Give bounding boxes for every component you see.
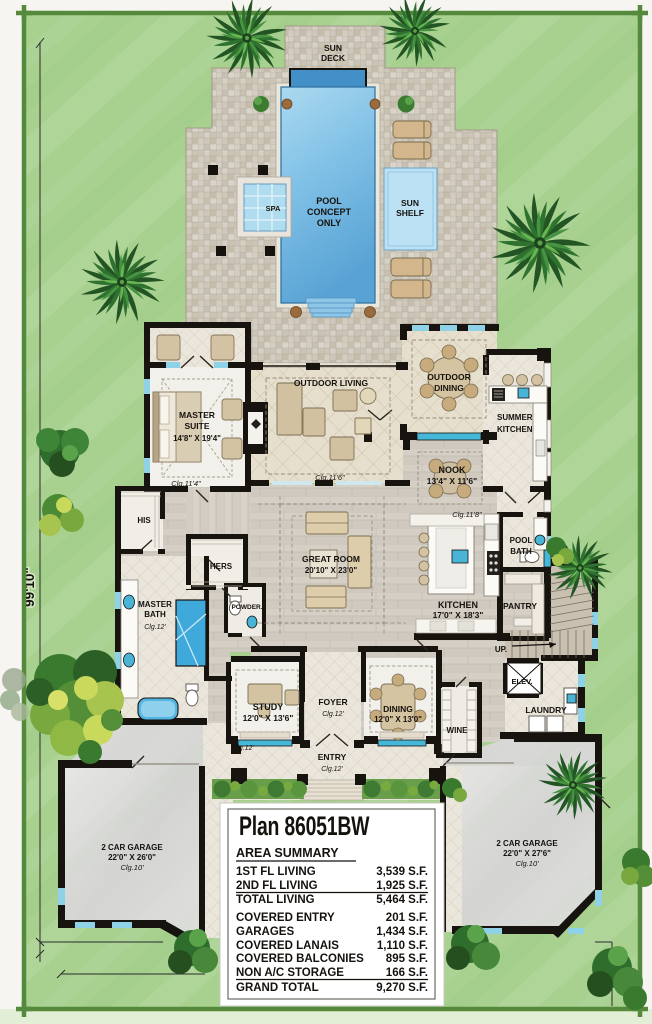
svg-text:CONCEPT: CONCEPT (307, 207, 352, 217)
svg-text:POOL: POOL (510, 536, 533, 545)
svg-text:12'0" X 13'6": 12'0" X 13'6" (243, 713, 294, 723)
svg-text:LAUNDRY: LAUNDRY (525, 705, 567, 715)
svg-text:Clg.11'6": Clg.11'6" (315, 473, 345, 482)
svg-text:Clg.11'4": Clg.11'4" (171, 479, 201, 488)
svg-text:2ND FL LIVING: 2ND FL LIVING (236, 880, 318, 892)
svg-text:22'0" X 27'6": 22'0" X 27'6" (503, 849, 551, 858)
svg-text:MASTER: MASTER (179, 410, 215, 420)
svg-text:13'4" X 11'6": 13'4" X 11'6" (427, 476, 477, 486)
svg-text:BATH: BATH (144, 610, 166, 619)
svg-text:DECK: DECK (321, 53, 346, 63)
svg-text:NOOK: NOOK (439, 465, 467, 475)
svg-text:NON A/C STORAGE: NON A/C STORAGE (236, 967, 344, 979)
svg-text:17'0" X 18'3": 17'0" X 18'3" (433, 610, 484, 620)
svg-text:2 CAR GARAGE: 2 CAR GARAGE (101, 843, 163, 852)
svg-text:ENTRY: ENTRY (318, 752, 347, 762)
svg-text:ELEV.: ELEV. (512, 677, 533, 686)
svg-text:201 S.F.: 201 S.F. (386, 912, 428, 924)
svg-text:Plan 86051BW: Plan 86051BW (239, 811, 370, 841)
svg-text:COVERED ENTRY: COVERED ENTRY (236, 912, 335, 924)
svg-text:SUMMER: SUMMER (497, 413, 533, 422)
svg-text:SUITE: SUITE (184, 421, 209, 431)
svg-text:1,110 S.F.: 1,110 S.F. (377, 940, 428, 952)
svg-text:22'0" X 26'0": 22'0" X 26'0" (108, 853, 156, 862)
svg-text:2 CAR GARAGE: 2 CAR GARAGE (496, 839, 558, 848)
svg-text:SHELF: SHELF (396, 208, 424, 218)
svg-text:Clg.12': Clg.12' (144, 624, 166, 631)
svg-text:SPA: SPA (266, 204, 281, 213)
svg-text:1ST FL LIVING: 1ST FL LIVING (236, 866, 316, 878)
svg-text:Clg.12': Clg.12' (321, 766, 343, 773)
svg-text:ONLY: ONLY (317, 218, 341, 228)
svg-text:HERS: HERS (210, 562, 233, 571)
svg-text:KITCHEN: KITCHEN (438, 600, 478, 610)
svg-text:3,539 S.F.: 3,539 S.F. (376, 866, 428, 878)
svg-text:BATH: BATH (510, 547, 532, 556)
svg-text:DINING: DINING (383, 704, 413, 714)
svg-text:Clg.10': Clg.10' (120, 863, 144, 872)
svg-text:MASTER: MASTER (138, 600, 172, 609)
svg-text:12'0" X 13'0": 12'0" X 13'0" (374, 715, 422, 724)
svg-text:9,270 S.F.: 9,270 S.F. (376, 982, 428, 994)
svg-text:GRAND TOTAL: GRAND TOTAL (236, 982, 319, 994)
svg-text:POWDER.: POWDER. (231, 604, 262, 611)
svg-text:STUDY: STUDY (253, 702, 284, 712)
svg-text:14'8" X 19'4": 14'8" X 19'4" (173, 434, 221, 443)
svg-text:OUTDOOR LIVING: OUTDOOR LIVING (294, 378, 369, 388)
svg-text:166 S.F.: 166 S.F. (386, 967, 428, 979)
svg-text:PANTRY: PANTRY (503, 601, 537, 611)
svg-text:AREA SUMMARY: AREA SUMMARY (236, 846, 339, 860)
svg-text:WINE: WINE (447, 726, 469, 735)
svg-text:FOYER: FOYER (318, 697, 347, 707)
svg-text:5,464 S.F.: 5,464 S.F. (376, 894, 428, 906)
svg-text:SUN: SUN (401, 198, 419, 208)
svg-text:1,434 S.F.: 1,434 S.F. (376, 926, 428, 938)
svg-text:1,925 S.F.: 1,925 S.F. (376, 880, 428, 892)
svg-text:Clg.11'8": Clg.11'8" (452, 510, 482, 519)
svg-text:POOL: POOL (316, 196, 342, 206)
svg-text:TOTAL LIVING: TOTAL LIVING (236, 894, 315, 906)
svg-text:DINING: DINING (434, 383, 464, 393)
svg-text:GREAT ROOM: GREAT ROOM (302, 554, 360, 564)
svg-text:UP.: UP. (495, 645, 507, 654)
svg-text:KITCHEN: KITCHEN (497, 425, 533, 434)
svg-text:COVERED BALCONIES: COVERED BALCONIES (236, 953, 364, 965)
svg-text:Clg.12': Clg.12' (232, 745, 254, 752)
svg-text:SUN: SUN (324, 43, 342, 53)
svg-text:20'10" X 23'0": 20'10" X 23'0" (305, 566, 358, 575)
svg-text:Clg.10': Clg.10' (515, 859, 539, 868)
svg-text:Clg.12': Clg.12' (322, 711, 344, 718)
svg-text:895 S.F.: 895 S.F. (386, 953, 428, 965)
svg-text:HIS: HIS (137, 516, 151, 525)
svg-text:OUTDOOR: OUTDOOR (427, 372, 470, 382)
svg-text:COVERED LANAIS: COVERED LANAIS (236, 940, 339, 952)
svg-text:GARAGES: GARAGES (236, 926, 294, 938)
